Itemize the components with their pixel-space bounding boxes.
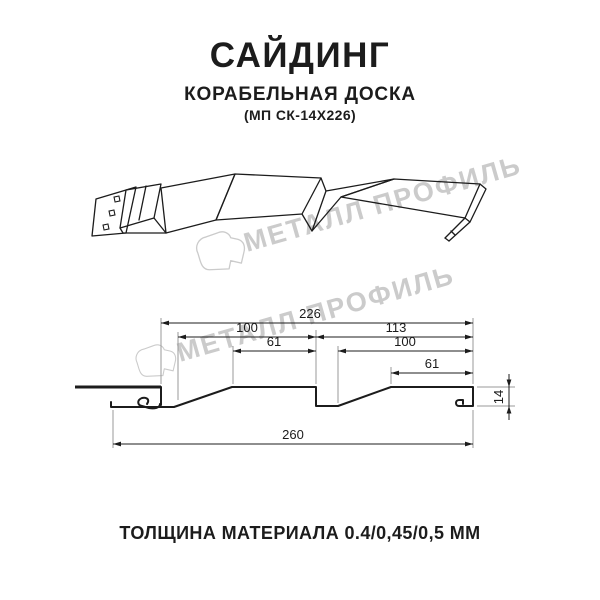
dim-right-upper: 100 xyxy=(394,334,416,349)
product-drawing-page: САЙДИНГ КОРАБЕЛЬНАЯ ДОСКА (МП СК-14Х226)… xyxy=(0,0,600,600)
brand-logo-icon xyxy=(197,232,245,270)
dim-overall-top: 226 xyxy=(299,306,321,321)
cross-section-profile xyxy=(75,387,473,408)
watermark-lower: МЕТАЛЛ ПРОФИЛЬ xyxy=(136,260,458,377)
technical-drawing: МЕТАЛЛ ПРОФИЛЬ xyxy=(0,0,600,600)
dim-right-flat: 61 xyxy=(425,356,439,371)
dim-height: 14 xyxy=(491,390,506,404)
brand-logo-icon-2 xyxy=(136,345,176,376)
dim-total: 260 xyxy=(282,427,304,442)
material-thickness-note: ТОЛЩИНА МАТЕРИАЛА 0.4/0,45/0,5 ММ xyxy=(0,523,600,544)
dim-right-board: 113 xyxy=(386,320,407,335)
dim-left-flat: 61 xyxy=(267,334,281,349)
dimension-lines xyxy=(113,323,509,444)
dim-left-board: 100 xyxy=(236,320,258,335)
